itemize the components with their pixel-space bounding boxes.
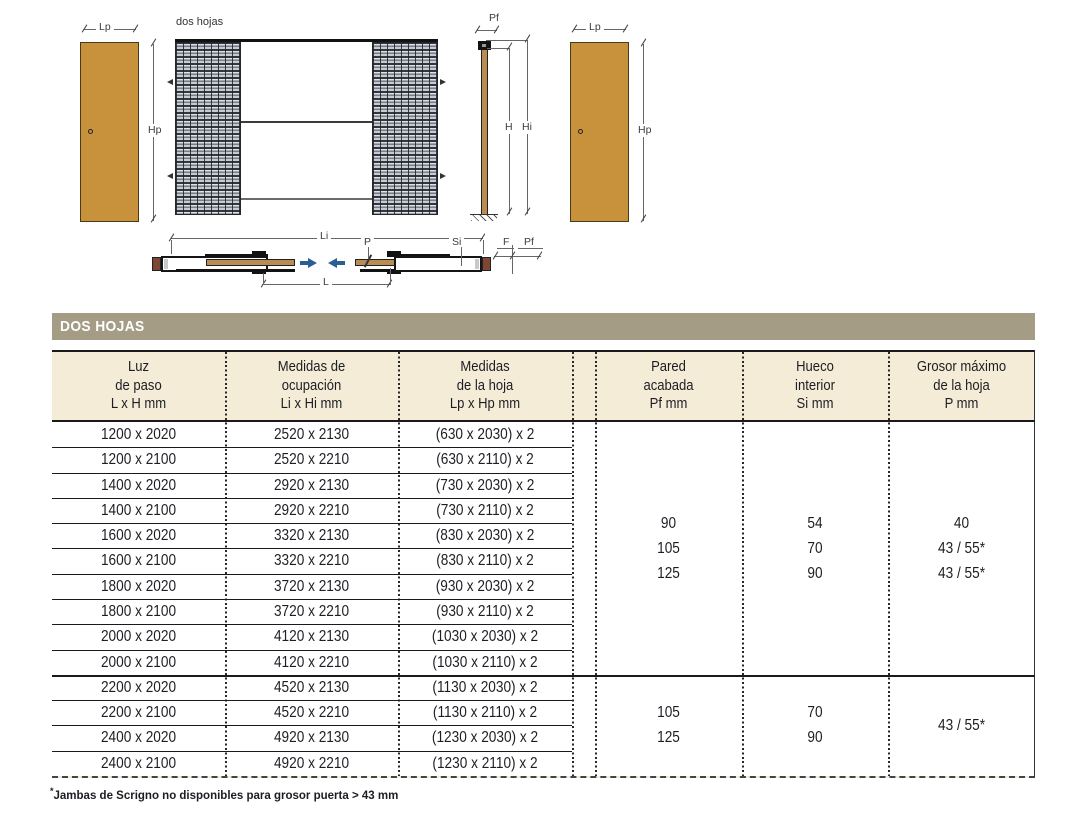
dim-tick — [133, 24, 139, 32]
group-value: 40 — [897, 511, 1026, 536]
table-cell: 4120 x 2130 — [235, 624, 387, 649]
footnote-text: Jambas de Scrigno no disponibles para gr… — [54, 790, 399, 802]
header-line: Li x Hi mm — [234, 395, 390, 414]
group-value: 90 — [751, 561, 879, 586]
dim-label-hp: Hp — [145, 124, 164, 137]
table-cell: 4120 x 2210 — [235, 650, 387, 675]
footnote: *Jambas de Scrigno no disponibles para g… — [50, 786, 398, 802]
rail-bottom — [241, 198, 372, 200]
table-cell: 4520 x 2210 — [235, 700, 387, 725]
table-cell: 3320 x 2130 — [235, 523, 387, 548]
table-cell: (1230 x 2030) x 2 — [408, 725, 561, 750]
header-line: Luz — [61, 358, 217, 377]
table-header-hueco: Hueco interior Si mm — [749, 352, 880, 420]
door-handle-icon — [88, 129, 93, 134]
dim-line — [487, 48, 509, 49]
table-cell: (930 x 2110) x 2 — [408, 599, 561, 624]
side-arrow-icon — [440, 79, 446, 85]
group-cell-grosor: 40 43 / 55* 43 / 55* — [897, 422, 1026, 675]
column-divider — [595, 352, 597, 776]
table-cell: 2000 x 2020 — [62, 624, 214, 649]
table-cell: (830 x 2030) x 2 — [408, 523, 561, 548]
side-arrow-icon — [440, 173, 446, 179]
header-line: Pared — [602, 358, 734, 377]
table-cell: (1030 x 2030) x 2 — [408, 624, 561, 649]
table-cell: 1800 x 2020 — [62, 574, 214, 599]
table-cell: (930 x 2030) x 2 — [408, 574, 561, 599]
slide-arrow-right-icon — [300, 261, 308, 265]
header-line: Lp x Hp mm — [407, 395, 564, 414]
door-handle-icon — [578, 129, 583, 134]
header-line: de la hoja — [407, 377, 564, 396]
dim-line — [486, 40, 527, 41]
table-cell: (730 x 2110) x 2 — [408, 498, 561, 523]
group-value: 70 — [751, 700, 879, 725]
group-value: 70 — [751, 536, 879, 561]
table-cell: (730 x 2030) x 2 — [408, 473, 561, 498]
table-cell: 1400 x 2100 — [62, 498, 214, 523]
group-value: 125 — [604, 561, 733, 586]
header-line: Si mm — [749, 395, 880, 414]
guide-rail — [176, 269, 295, 272]
slide-arrow-left-icon — [337, 261, 345, 265]
datasheet-page: Lp Hp dos hojas Pf H Hi — [0, 0, 1083, 817]
table-header-grosor: Grosor máximo de la hoja P mm — [895, 352, 1027, 420]
wall-section-member — [481, 50, 488, 214]
group-value: 43 / 55* — [897, 536, 1026, 561]
group-cell-pared: 105 125 — [604, 675, 733, 776]
column-divider — [398, 352, 400, 776]
pocket-plan-right — [394, 256, 482, 272]
dim-tick — [623, 24, 629, 32]
table-cell: (1230 x 2110) x 2 — [408, 751, 561, 776]
table-cell: (1130 x 2110) x 2 — [408, 700, 561, 725]
group-cell-hueco: 70 90 — [751, 675, 879, 776]
table-cell: 2520 x 2210 — [235, 447, 387, 472]
table-cell: 4920 x 2210 — [235, 751, 387, 776]
table-cell: 1600 x 2020 — [62, 523, 214, 548]
group-cell-grosor: 43 / 55* — [897, 675, 1026, 776]
table-cell: 1600 x 2100 — [62, 548, 214, 573]
slide-arrow-right-icon — [308, 258, 317, 268]
group-cell-hueco: 54 70 90 — [751, 422, 879, 675]
table-cell: (1030 x 2110) x 2 — [408, 650, 561, 675]
table-cell: (630 x 2110) x 2 — [408, 447, 561, 472]
jamb-right — [482, 257, 491, 271]
table-header-luz: Luz de paso L x H mm — [61, 352, 217, 420]
header-line: ocupación — [234, 377, 390, 396]
table-cell: 1200 x 2020 — [62, 422, 214, 447]
table-cell: 2000 x 2100 — [62, 650, 214, 675]
dim-tick — [151, 214, 157, 222]
pocket-mesh-left — [175, 42, 241, 215]
header-line: L x H mm — [61, 395, 217, 414]
table-cell: 1800 x 2100 — [62, 599, 214, 624]
table-cell: 2920 x 2130 — [235, 473, 387, 498]
table-cell: 2400 x 2020 — [62, 725, 214, 750]
mouth-brush — [252, 251, 266, 255]
table-header-pared: Pared acabada Pf mm — [602, 352, 734, 420]
header-line: interior — [749, 377, 880, 396]
column-divider — [572, 352, 574, 776]
dim-tick — [525, 207, 531, 215]
dim-label-pf: Pf — [486, 12, 502, 25]
dim-label-l: L — [320, 276, 332, 289]
mouth-brush — [387, 251, 401, 255]
column-divider — [225, 352, 227, 776]
table-cell: 2200 x 2020 — [62, 675, 214, 700]
table-cell: 3720 x 2130 — [235, 574, 387, 599]
dim-tick — [494, 25, 500, 33]
header-line: Medidas — [407, 358, 564, 377]
table-cell: 3720 x 2210 — [235, 599, 387, 624]
group-value: 43 / 55* — [897, 561, 1026, 586]
rail-middle — [241, 121, 372, 123]
table-cell: (830 x 2110) x 2 — [408, 548, 561, 573]
header-line: acabada — [602, 377, 734, 396]
table-title-bar: DOS HOJAS — [52, 313, 1035, 340]
dim-line — [461, 247, 462, 266]
dim-label-lp: Lp — [586, 21, 604, 34]
table-cell: 4920 x 2130 — [235, 725, 387, 750]
dim-line — [263, 273, 264, 285]
dim-line — [171, 240, 172, 254]
table-cell: 4520 x 2130 — [235, 675, 387, 700]
dim-label-hp: Hp — [635, 124, 654, 137]
header-line: Pf mm — [602, 395, 734, 414]
ground-hatch — [471, 215, 497, 221]
dimensions-table: Luz de paso L x H mm Medidas de ocupació… — [52, 350, 1035, 778]
table-header-hoja: Medidas de la hoja Lp x Hp mm — [407, 352, 564, 420]
header-line: Hueco — [749, 358, 880, 377]
table-cell: 3320 x 2210 — [235, 548, 387, 573]
door-panel-right — [570, 42, 629, 222]
column-divider — [888, 352, 890, 776]
dim-label-si: Si — [449, 236, 464, 249]
header-line: Grosor máximo — [895, 358, 1027, 377]
group-cell-pared: 90 105 125 — [604, 422, 733, 675]
table-header-ocupacion: Medidas de ocupación Li x Hi mm — [234, 352, 390, 420]
header-line: de la hoja — [895, 377, 1027, 396]
group-value: 105 — [604, 536, 733, 561]
dim-line — [483, 240, 484, 254]
group-value: 105 — [604, 700, 733, 725]
pocket-liner — [164, 259, 168, 269]
dim-label-li: Li — [317, 230, 331, 243]
side-arrow-icon — [167, 173, 173, 179]
column-divider — [742, 352, 744, 776]
technical-diagrams: Lp Hp dos hojas Pf H Hi — [0, 0, 1083, 305]
leaf-plan-left — [206, 259, 295, 266]
side-arrow-icon — [167, 79, 173, 85]
table-cell: 2200 x 2100 — [62, 700, 214, 725]
dim-tick — [507, 207, 513, 215]
dim-line — [390, 268, 391, 285]
table-title: DOS HOJAS — [60, 313, 145, 340]
group-value: 90 — [604, 511, 733, 536]
dim-line — [494, 256, 541, 257]
dim-line — [368, 247, 369, 258]
group-value: 54 — [751, 511, 879, 536]
jamb-left — [152, 257, 161, 271]
group-value: 90 — [751, 725, 879, 750]
pocket-liner — [475, 259, 479, 269]
table-cell: 2400 x 2100 — [62, 751, 214, 776]
door-panel-left — [80, 42, 139, 222]
dim-label-h: H — [502, 121, 516, 134]
track-section-inner — [482, 44, 486, 47]
dim-tick — [537, 251, 543, 259]
header-line: de paso — [61, 377, 217, 396]
table-cell: 2920 x 2210 — [235, 498, 387, 523]
table-cell: 1400 x 2020 — [62, 473, 214, 498]
dim-line — [518, 248, 543, 249]
dim-line — [512, 245, 513, 274]
group-value: 125 — [604, 725, 733, 750]
table-cell: 2520 x 2130 — [235, 422, 387, 447]
table-cell: (1130 x 2030) x 2 — [408, 675, 561, 700]
slide-arrow-left-icon — [328, 258, 337, 268]
diagram-caption: dos hojas — [176, 16, 223, 28]
pocket-mesh-right — [372, 42, 438, 215]
header-line: P mm — [895, 395, 1027, 414]
group-value: 43 / 55* — [897, 713, 1026, 738]
dim-label-hi: Hi — [519, 121, 535, 134]
table-cell: (630 x 2030) x 2 — [408, 422, 561, 447]
dim-label-lp: Lp — [96, 21, 114, 34]
table-cell: 1200 x 2100 — [62, 447, 214, 472]
dim-tick — [641, 214, 647, 222]
header-line: Medidas de — [234, 358, 390, 377]
